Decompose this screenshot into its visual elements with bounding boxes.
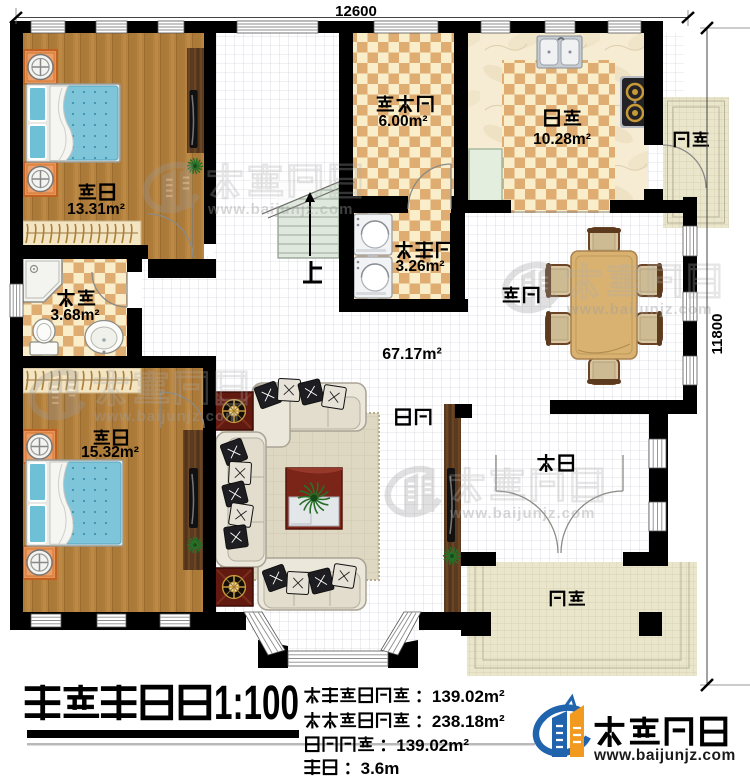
svg-text:15.32m²: 15.32m² (81, 444, 139, 461)
svg-text:13.31m²: 13.31m² (67, 201, 125, 218)
svg-text:：139.02m²: ：139.02m² (415, 687, 505, 706)
svg-text:3.26m²: 3.26m² (395, 258, 444, 275)
svg-text:：238.18m²: ：238.18m² (415, 712, 505, 731)
svg-text:6.00m²: 6.00m² (378, 113, 427, 130)
svg-text:67.17m²: 67.17m² (382, 346, 442, 363)
svg-text:：3.6m: ：3.6m (344, 759, 400, 778)
svg-text:www.baijunjz.com: www.baijunjz.com (93, 408, 239, 425)
svg-text:10.28m²: 10.28m² (533, 131, 591, 148)
svg-text:www.baijunjz.com: www.baijunjz.com (566, 301, 712, 318)
svg-text:www.baijunjz.com: www.baijunjz.com (449, 505, 595, 522)
svg-text:：139.02m²: ：139.02m² (379, 736, 469, 755)
svg-text:3.68m²: 3.68m² (50, 307, 99, 324)
svg-text:www.baijunjz.com: www.baijunjz.com (593, 747, 736, 764)
svg-text:www.baijunjz.com: www.baijunjz.com (207, 201, 353, 218)
svg-text:11800: 11800 (709, 314, 726, 355)
svg-text:1:100: 1:100 (214, 677, 299, 730)
svg-text:12600: 12600 (335, 3, 377, 20)
